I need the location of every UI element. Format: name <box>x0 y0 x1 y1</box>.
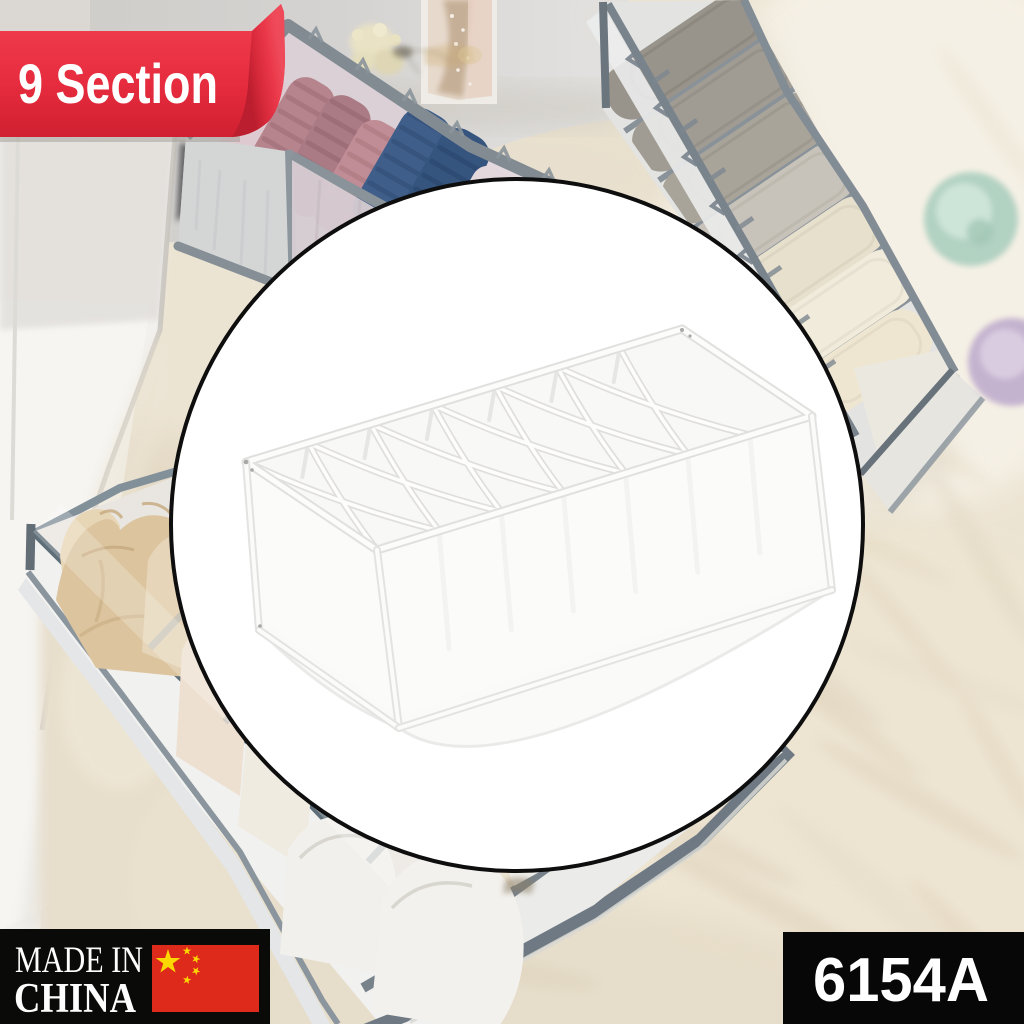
svg-text:CHINA: CHINA <box>14 976 137 1022</box>
svg-text:6154A: 6154A <box>813 946 989 1015</box>
svg-text:MADE IN: MADE IN <box>15 940 143 981</box>
svg-text:9 Section: 9 Section <box>18 52 218 115</box>
